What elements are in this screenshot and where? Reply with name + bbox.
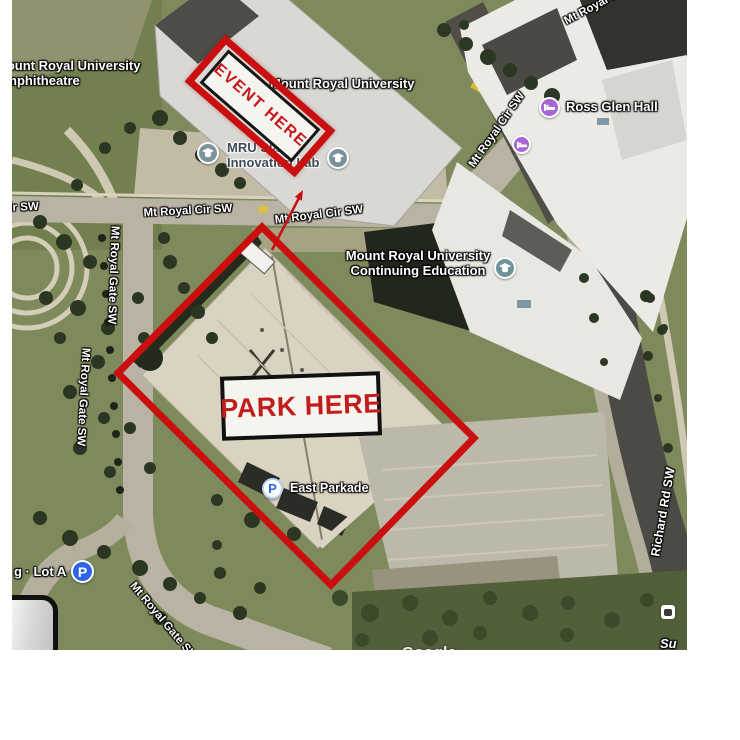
satellite-map[interactable]: Mt Royal Cir SW Mt Royal Cir SW Mt Royal… <box>12 0 687 650</box>
annotation-overlay <box>12 0 687 650</box>
event-arrow-head <box>295 190 303 201</box>
park-here-text: PARK HERE <box>220 388 383 425</box>
park-here-annotation: PARK HERE <box>220 371 382 441</box>
screenshot-page: Mt Royal Cir SW Mt Royal Cir SW Mt Royal… <box>0 0 740 740</box>
event-arrow-line <box>272 194 301 250</box>
